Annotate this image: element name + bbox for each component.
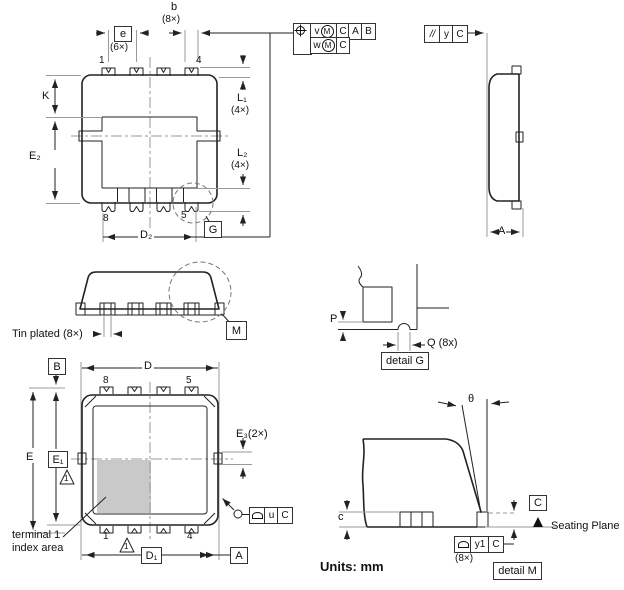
terminal1-index-area <box>97 460 151 513</box>
profile-y1-tolerance-cell: y1 <box>470 536 490 553</box>
profile-u-datum-cell: C <box>277 507 293 524</box>
datum-b-cell: B <box>361 23 376 40</box>
dim-q-label: Q (8x) <box>427 337 458 349</box>
dim-k-label: K <box>42 90 49 102</box>
dim-e1-box: E₁ <box>48 451 68 468</box>
side-elevation-drawing <box>76 262 231 337</box>
pin1-label-bottom-view: 1 <box>99 55 105 66</box>
units-label: Units: mm <box>320 560 384 574</box>
datum-b-box: B <box>48 358 66 375</box>
detail-m-drawing <box>339 399 556 544</box>
pin4-label-top-view: 4 <box>187 531 193 542</box>
angle-theta-label: θ <box>468 393 474 405</box>
detail-g-caption-box: detail G <box>381 352 429 370</box>
dim-e-label: E <box>24 451 35 463</box>
note-flag-1b: 1 <box>124 543 128 551</box>
dim-l2-label: L₂ <box>237 147 247 159</box>
dim-d1-box: D₁ <box>141 547 162 564</box>
datum-c-triangle <box>533 517 543 527</box>
pin5-label-top-view: 5 <box>186 375 192 386</box>
dim-l1-label: L₁ <box>237 92 247 104</box>
pin5-label-bottom-view: 5 <box>181 210 187 221</box>
pin1-label-top-view: 1 <box>103 531 109 542</box>
pin8-label-top-view: 8 <box>103 375 109 386</box>
dim-b-label: b <box>171 1 177 13</box>
dim-b-count: (8×) <box>162 14 180 25</box>
datum-a-box: A <box>230 547 248 564</box>
dim-e-count: (6×) <box>110 42 128 53</box>
dim-d2-label: D₂ <box>138 229 154 241</box>
seating-plane-label: Seating Plane <box>551 520 620 532</box>
dim-a-label: A <box>498 225 505 237</box>
mmc-modifier-icon: M <box>322 39 335 52</box>
datum-c-cell-2: C <box>336 37 350 54</box>
dim-e2-label: E₂ <box>29 150 41 162</box>
dim-l1-count: (4×) <box>231 105 249 116</box>
datum-c-box: C <box>529 495 547 511</box>
dim-d-label: D <box>142 360 154 372</box>
parallelism-datum-cell: C <box>452 25 468 43</box>
detail-m-ref-box: M <box>226 321 247 340</box>
pin8-label-bottom-view: 8 <box>103 213 109 224</box>
terminal1-index-label-line2: index area <box>12 542 63 554</box>
pin4-label-bottom-view: 4 <box>196 55 202 66</box>
tolerance-w-cell: wM <box>310 37 338 54</box>
detail-m-caption-box: detail M <box>493 562 542 580</box>
dim-p-label: P <box>330 313 337 325</box>
dim-e3-label: E₃(2×) <box>236 428 268 440</box>
package-outline-drawing: b (8×) e (6×) 1 4 K E₂ L₁ (4×) L₂ (4×) 8… <box>0 0 624 590</box>
tin-plated-label: Tin plated (8×) <box>12 328 83 340</box>
dim-c-label: c <box>338 511 344 523</box>
y1-count-label: (8×) <box>455 553 473 564</box>
bottom-view-drawing <box>46 30 293 242</box>
dim-e-box: e <box>114 26 132 42</box>
note-flag-1a: 1 <box>64 475 68 483</box>
terminal1-index-label-line1: terminal 1 <box>12 529 60 541</box>
profile-y1-datum-cell: C <box>488 536 504 553</box>
dim-l2-count: (4×) <box>231 160 249 171</box>
side-profile-drawing <box>468 33 523 237</box>
detail-g-ref-box: G <box>204 221 222 238</box>
